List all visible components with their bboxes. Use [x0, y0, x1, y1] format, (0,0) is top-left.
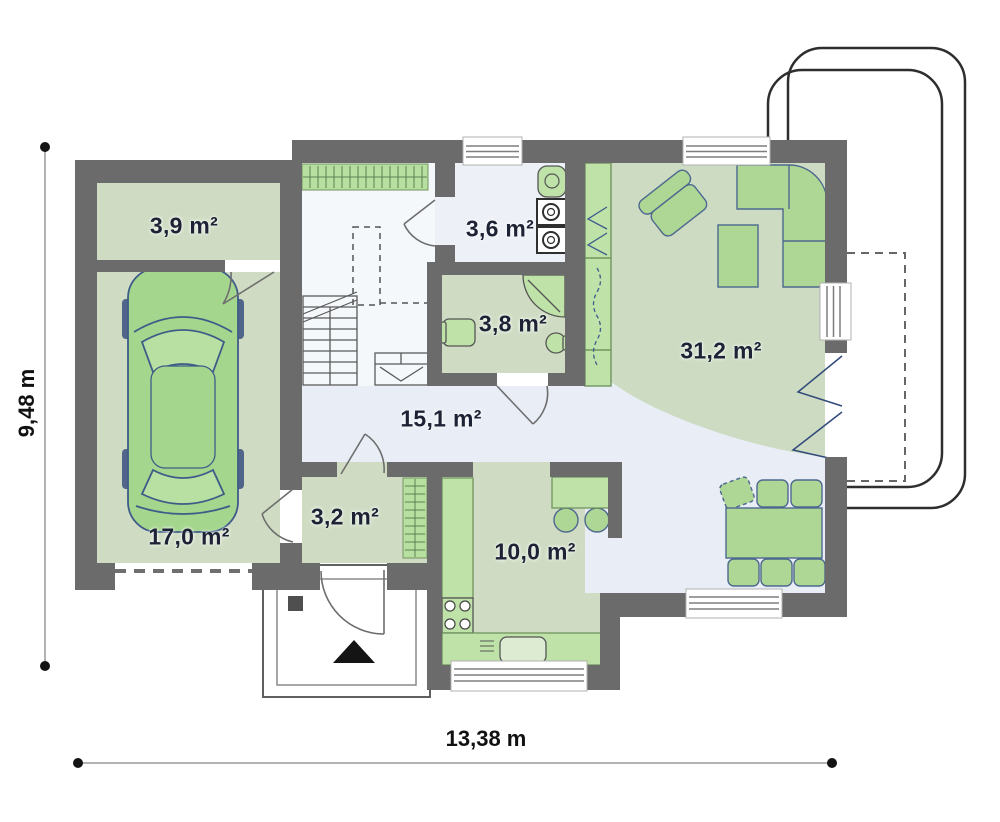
bathroom-sink [443, 319, 475, 346]
floor-plan-drawing [0, 0, 1000, 822]
kitchen-sink [500, 637, 546, 663]
terrace-floor-dashed [847, 253, 905, 481]
room-label-utility: 3,6 m² [466, 216, 534, 243]
bar-stool [554, 508, 578, 532]
window-kitchen-bottom [451, 661, 587, 691]
window-utility-top [463, 137, 522, 165]
room-label-storage: 3,9 m² [150, 213, 218, 240]
room-label-hall: 15,1 m² [400, 406, 481, 433]
sideboard [585, 163, 611, 386]
room-label-living: 31,2 m² [680, 338, 761, 365]
room-label-garage: 17,0 m² [148, 524, 229, 551]
room-label-kitchen: 10,0 m² [494, 539, 575, 566]
dining-chair [728, 559, 759, 586]
dining-chair [794, 559, 825, 586]
kitchen-counter [442, 478, 473, 598]
coffee-table [718, 225, 758, 287]
dimension-width-label: 13,38 m [446, 726, 527, 752]
dining-chair [757, 480, 788, 507]
window-living-top [683, 137, 770, 165]
dimension-height-label: 9,48 m [14, 369, 40, 438]
dryer [537, 227, 566, 253]
vestibule-wardrobe [403, 478, 427, 558]
room-label-bathroom: 3,8 m² [479, 311, 547, 338]
window-living-right [820, 283, 851, 340]
dining-chair [791, 480, 822, 507]
dining-table [726, 508, 822, 558]
utility-appliances [537, 166, 566, 253]
bar-stool [585, 508, 609, 532]
hall-wardrobe [302, 164, 428, 190]
dining-furniture [718, 476, 825, 586]
boiler [538, 166, 566, 197]
washer [537, 199, 566, 225]
breakfast-bar [552, 477, 613, 508]
room-label-vestibule: 3,2 m² [311, 504, 379, 531]
window-dining-bottom [686, 589, 782, 618]
floor-plan-page: 3,9 m² 3,6 m² 3,8 m² 31,2 m² 15,1 m² 17,… [0, 0, 1000, 822]
porch-pillar [288, 596, 303, 611]
car [122, 268, 244, 532]
dining-chair [761, 559, 792, 586]
